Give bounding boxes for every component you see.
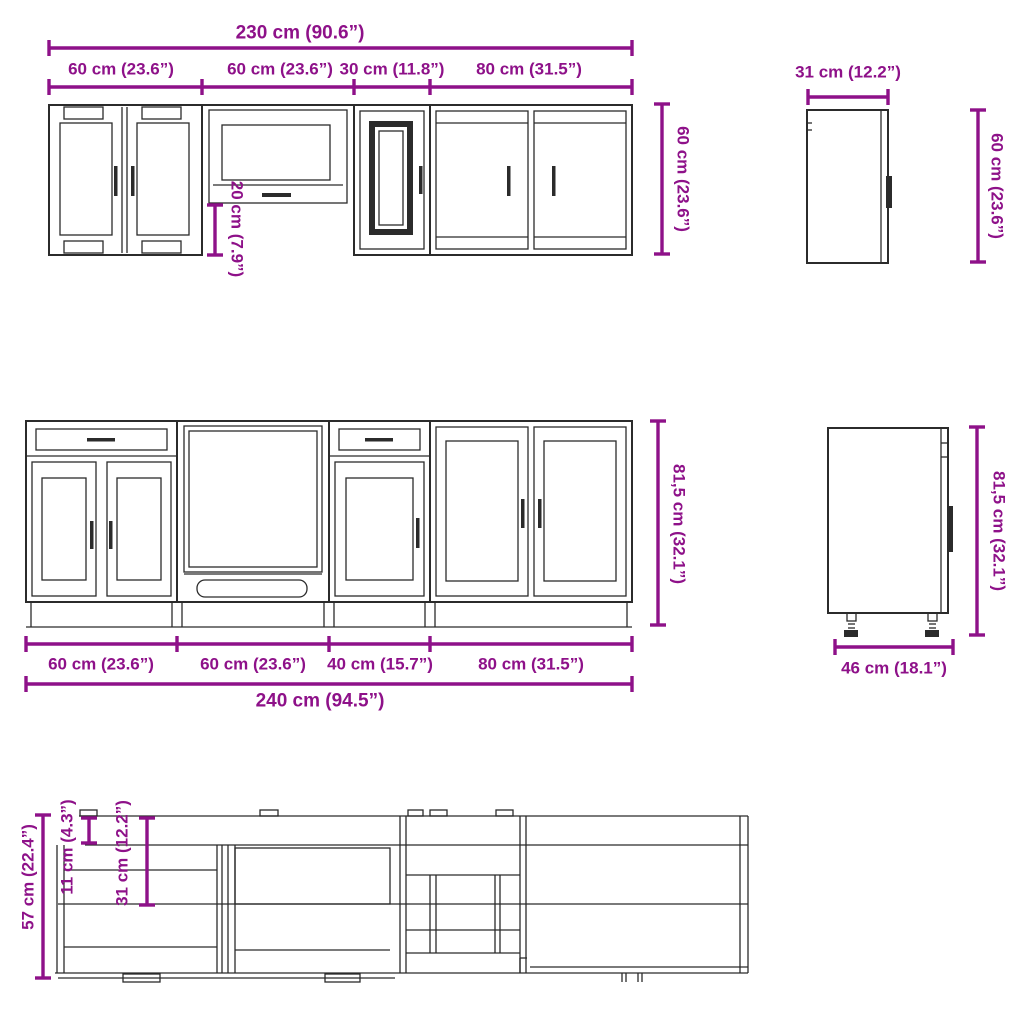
base-segment-80-label: 80 cm (31.5”)	[478, 656, 584, 673]
kitchen-set-top-view	[55, 810, 748, 982]
wall-total-width-label: 230 cm (90.6”)	[236, 24, 365, 43]
base-cabinet-60-oven	[177, 421, 329, 627]
base-cabinet-side-view	[828, 428, 953, 637]
base-side-depth-label: 46 cm (18.1”)	[841, 660, 947, 677]
base-side-height-label: 81,5 cm (32.1”)	[991, 471, 1008, 591]
base-height-dimension	[650, 421, 666, 625]
wall-segment-60b-label: 60 cm (23.6”)	[227, 61, 333, 78]
kitchen-cabinet-dimension-diagram: 230 cm (90.6”) 60 cm (23.6”) 60 cm (23.6…	[0, 0, 1024, 1024]
wall-segments-dimension	[49, 79, 632, 95]
hood-clearance-dimension	[207, 205, 223, 255]
top-view-overhang-label: 11 cm (4.3”)	[59, 799, 76, 894]
wall-cabinet-side-view	[807, 110, 892, 263]
top-view-overhang-dimension	[81, 818, 97, 843]
wall-cabinet-60-doors	[49, 105, 202, 255]
wall-height-dimension	[654, 104, 670, 254]
base-side-height-dimension	[969, 427, 985, 635]
base-segment-40-label: 40 cm (15.7”)	[327, 656, 433, 673]
top-view-counter-depth-dimension	[139, 818, 155, 905]
wall-cabinet-80-doors	[430, 105, 632, 255]
hood-clearance-label: 20 cm (7.9”)	[229, 181, 246, 277]
diagram-line-art	[0, 0, 1024, 1024]
base-segments-dimension	[26, 636, 632, 652]
base-height-label: 81,5 cm (32.1”)	[671, 464, 688, 584]
wall-segment-30-label: 30 cm (11.8”)	[340, 61, 445, 78]
wall-cabinet-60-hood	[202, 105, 354, 255]
base-cabinet-80-doors	[430, 421, 632, 627]
base-side-depth-dimension	[835, 639, 953, 655]
wall-segment-80-label: 80 cm (31.5”)	[476, 61, 582, 78]
wall-side-height-label: 60 cm (23.6”)	[989, 133, 1006, 239]
top-view-counter-depth-label: 31 cm (12.2”)	[114, 800, 131, 906]
wall-side-depth-dimension	[808, 89, 888, 105]
wall-cabinet-30-glass	[354, 105, 430, 255]
base-cabinet-40-drawer-door	[329, 421, 430, 627]
wall-segment-60a-label: 60 cm (23.6”)	[68, 61, 174, 78]
wall-side-depth-label: 31 cm (12.2”)	[795, 64, 901, 81]
wall-side-height-dimension	[970, 110, 986, 262]
base-segment-60a-label: 60 cm (23.6”)	[48, 656, 154, 673]
top-view-total-depth-label: 57 cm (22.4”)	[20, 824, 37, 930]
base-cabinet-60-drawer-doors	[26, 421, 177, 627]
base-segment-60b-label: 60 cm (23.6”)	[200, 656, 306, 673]
base-total-width-label: 240 cm (94.5”)	[256, 692, 385, 711]
wall-height-label: 60 cm (23.6”)	[675, 126, 692, 232]
